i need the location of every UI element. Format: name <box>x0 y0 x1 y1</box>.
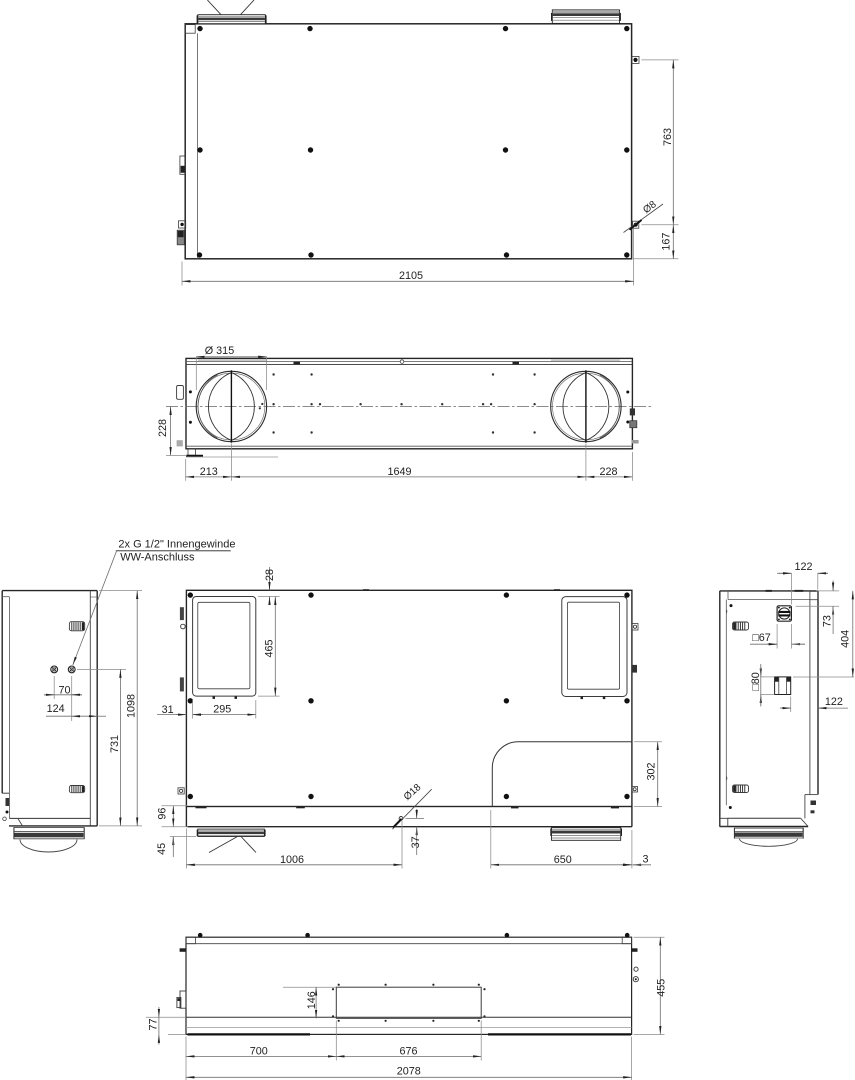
svg-text:213: 213 <box>200 466 218 478</box>
svg-text:1649: 1649 <box>387 466 411 478</box>
svg-text:WW-Anschluss: WW-Anschluss <box>120 552 195 564</box>
svg-text:77: 77 <box>148 1018 160 1030</box>
svg-text:731: 731 <box>109 735 121 753</box>
svg-text:□67: □67 <box>752 632 771 644</box>
svg-text:Ø 315: Ø 315 <box>205 345 234 357</box>
svg-text:37: 37 <box>410 836 422 848</box>
svg-text:228: 228 <box>157 419 169 437</box>
svg-text:465: 465 <box>264 639 276 657</box>
svg-text:124: 124 <box>47 703 65 715</box>
svg-text:676: 676 <box>399 1045 417 1057</box>
svg-text:122: 122 <box>825 696 843 708</box>
svg-text:1098: 1098 <box>126 694 138 718</box>
svg-text:700: 700 <box>250 1045 268 1057</box>
svg-text:1006: 1006 <box>280 854 304 866</box>
svg-text:□80: □80 <box>750 672 762 691</box>
svg-text:228: 228 <box>599 466 617 478</box>
svg-text:763: 763 <box>662 128 674 146</box>
svg-text:2078: 2078 <box>397 1066 421 1078</box>
svg-text:404: 404 <box>839 630 851 648</box>
svg-text:122: 122 <box>794 561 812 573</box>
svg-text:2105: 2105 <box>399 270 423 282</box>
svg-text:650: 650 <box>554 854 572 866</box>
svg-text:70: 70 <box>58 684 70 696</box>
svg-text:167: 167 <box>660 233 672 251</box>
svg-text:45: 45 <box>156 843 168 855</box>
svg-text:73: 73 <box>822 615 834 627</box>
svg-text:28: 28 <box>264 569 276 581</box>
svg-text:455: 455 <box>655 979 667 997</box>
svg-text:295: 295 <box>213 703 231 715</box>
svg-text:96: 96 <box>156 808 168 820</box>
svg-text:2x G 1/2" Innengewinde: 2x G 1/2" Innengewinde <box>118 539 235 551</box>
svg-text:302: 302 <box>645 762 657 780</box>
svg-text:146: 146 <box>306 991 318 1009</box>
svg-text:31: 31 <box>162 704 174 716</box>
svg-text:3: 3 <box>642 853 648 865</box>
